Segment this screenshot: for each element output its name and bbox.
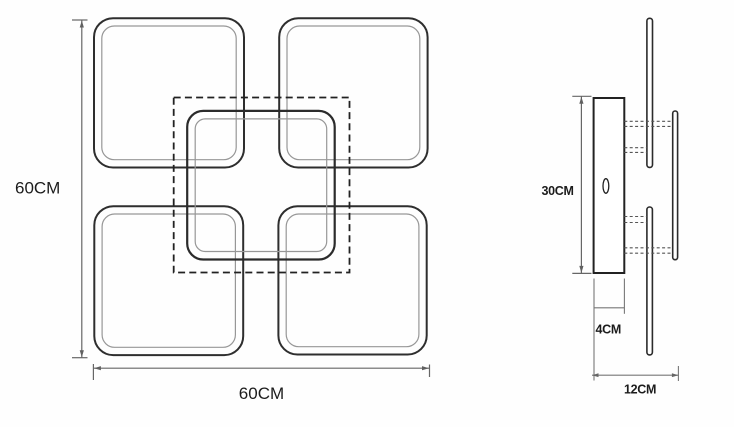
svg-text:30CM: 30CM [542,184,574,198]
svg-text:4CM: 4CM [596,323,622,337]
svg-text:12CM: 12CM [624,383,656,397]
svg-text:60CM: 60CM [15,179,60,198]
svg-text:60CM: 60CM [239,384,284,403]
